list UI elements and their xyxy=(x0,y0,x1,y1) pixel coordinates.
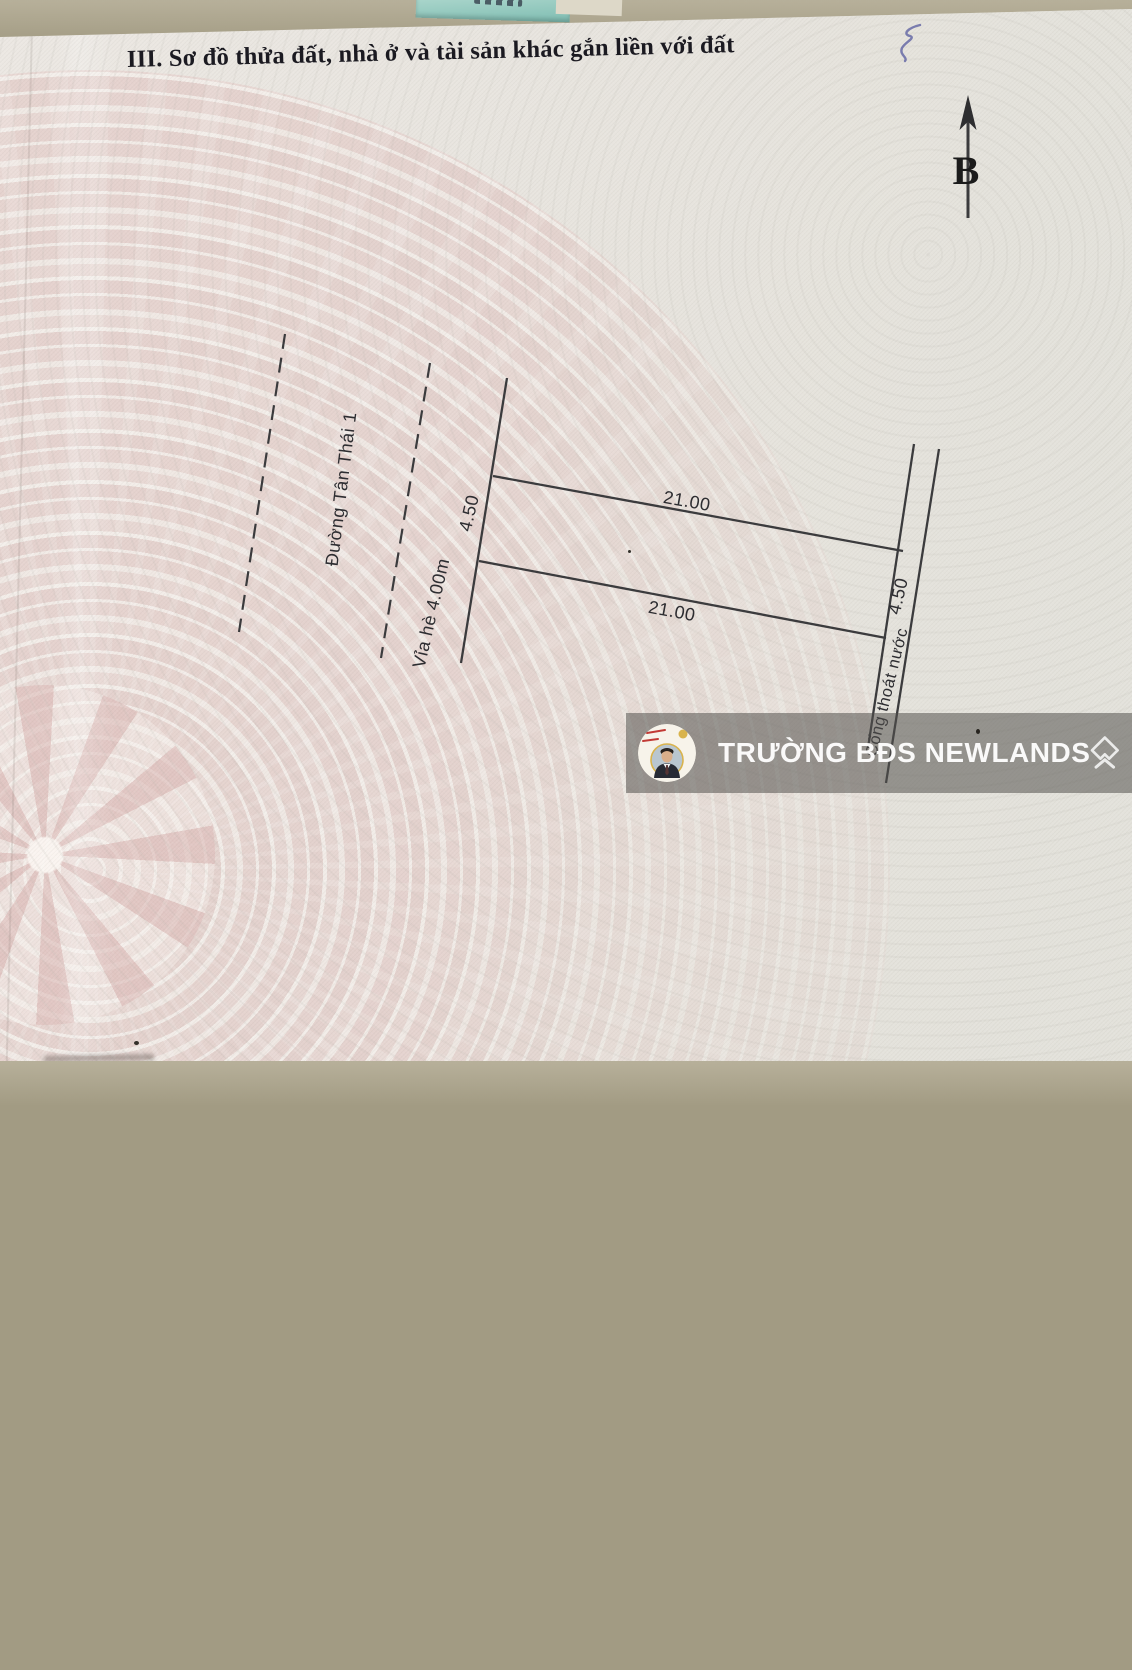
parcel-bottom-boundary xyxy=(479,561,886,638)
watermark-text: TRƯỜNG BĐS NEWLANDS xyxy=(718,737,1090,769)
ink-speck xyxy=(134,1041,139,1045)
sidewalk-label: Vỉa hè 4.00m xyxy=(409,556,454,670)
avatar-gold-emblem xyxy=(679,730,688,739)
north-arrow: B xyxy=(953,95,980,218)
road-name-label: Đường Tân Thái 1 xyxy=(322,411,361,568)
green-note-paper-scrap xyxy=(416,0,571,22)
parcel-diagram: B Đường Tân Thái 1 Vỉa hè 4.00m 4.50 21.… xyxy=(0,0,1132,1061)
back-width-label: 4.50 xyxy=(884,576,912,617)
light-paper-scrap xyxy=(556,0,623,16)
photo-scene: III. Sơ đồ thửa đất, nhà ở và tài sản kh… xyxy=(0,0,1132,1061)
parcel-top-boundary xyxy=(493,476,903,551)
newlands-logo-icon xyxy=(1090,728,1120,778)
front-width-label: 4.50 xyxy=(455,493,483,534)
watermark-bar: TRƯỜNG BĐS NEWLANDS xyxy=(626,713,1132,793)
road-dashed-line-left xyxy=(239,334,285,632)
top-length-label: 21.00 xyxy=(662,487,712,515)
avatar-photo xyxy=(638,724,696,782)
ink-speck xyxy=(628,550,631,553)
certificate-page: III. Sơ đồ thửa đất, nhà ở và tài sản kh… xyxy=(0,0,1132,1061)
north-label: B xyxy=(953,148,980,193)
handwritten-mark xyxy=(901,25,920,61)
ink-speck xyxy=(976,729,980,734)
